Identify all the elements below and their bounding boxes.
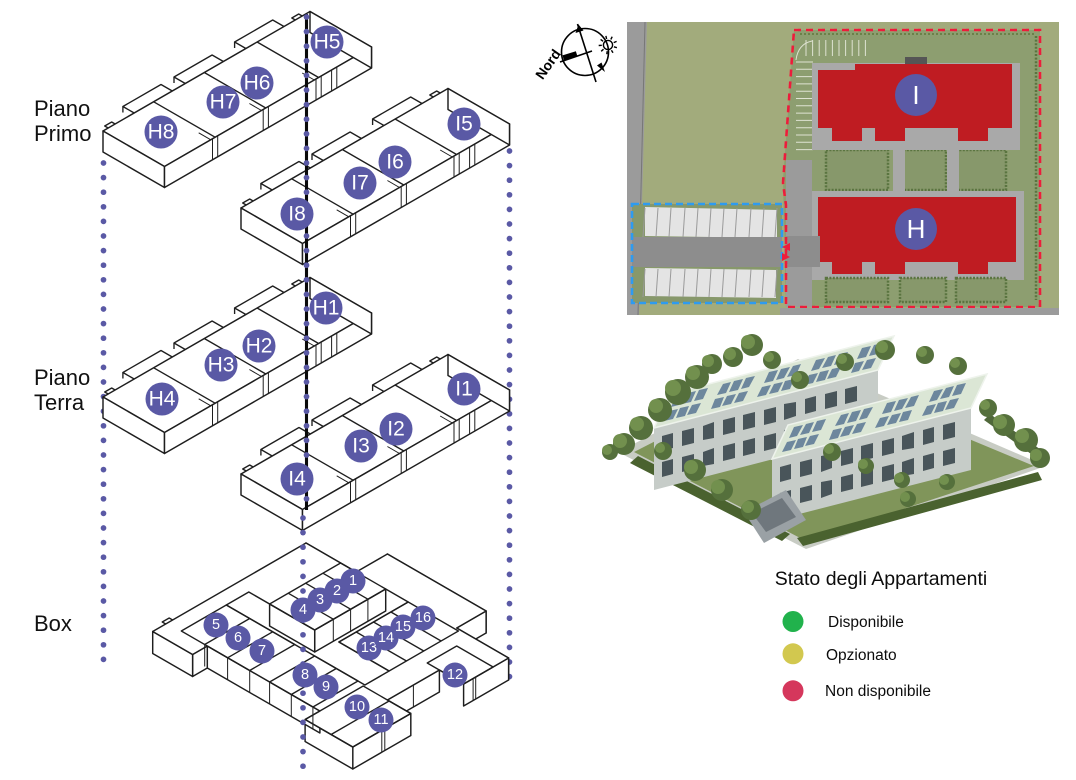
svg-text:H8: H8 xyxy=(148,121,175,144)
svg-text:I7: I7 xyxy=(351,172,369,195)
svg-text:6: 6 xyxy=(234,630,242,646)
svg-text:I5: I5 xyxy=(455,113,473,136)
svg-text:I6: I6 xyxy=(386,151,404,174)
svg-text:H6: H6 xyxy=(244,72,271,95)
svg-text:H5: H5 xyxy=(314,31,341,54)
svg-text:I2: I2 xyxy=(387,418,405,441)
svg-text:4: 4 xyxy=(299,602,307,618)
svg-text:PianoPrimo: PianoPrimo xyxy=(34,96,91,146)
svg-text:Box: Box xyxy=(34,611,72,636)
svg-text:H4: H4 xyxy=(149,388,176,411)
svg-text:10: 10 xyxy=(349,699,365,715)
svg-text:5: 5 xyxy=(212,617,220,633)
svg-text:I3: I3 xyxy=(352,435,370,458)
svg-text:Stato degli Appartamenti: Stato degli Appartamenti xyxy=(775,568,987,590)
svg-text:Disponibile: Disponibile xyxy=(828,614,904,631)
svg-text:16: 16 xyxy=(415,610,431,626)
svg-text:I4: I4 xyxy=(288,468,306,491)
svg-text:H: H xyxy=(907,214,926,244)
svg-text:1: 1 xyxy=(349,573,357,589)
svg-text:H1: H1 xyxy=(313,297,340,320)
svg-text:PianoTerra: PianoTerra xyxy=(34,365,90,415)
svg-text:14: 14 xyxy=(378,630,394,646)
svg-text:I8: I8 xyxy=(288,203,306,226)
svg-text:15: 15 xyxy=(395,619,411,635)
svg-text:H7: H7 xyxy=(210,91,237,114)
svg-text:H3: H3 xyxy=(208,354,235,377)
svg-text:I: I xyxy=(912,80,919,110)
svg-text:7: 7 xyxy=(258,643,266,659)
svg-text:I1: I1 xyxy=(455,378,473,401)
svg-text:12: 12 xyxy=(447,667,463,683)
svg-text:9: 9 xyxy=(322,679,330,695)
svg-text:Non disponibile: Non disponibile xyxy=(825,683,931,700)
svg-text:3: 3 xyxy=(316,592,324,608)
svg-text:2: 2 xyxy=(333,583,341,599)
svg-text:Opzionato: Opzionato xyxy=(826,647,897,664)
svg-text:H2: H2 xyxy=(246,335,273,358)
svg-text:11: 11 xyxy=(373,712,388,728)
svg-text:8: 8 xyxy=(301,667,309,683)
